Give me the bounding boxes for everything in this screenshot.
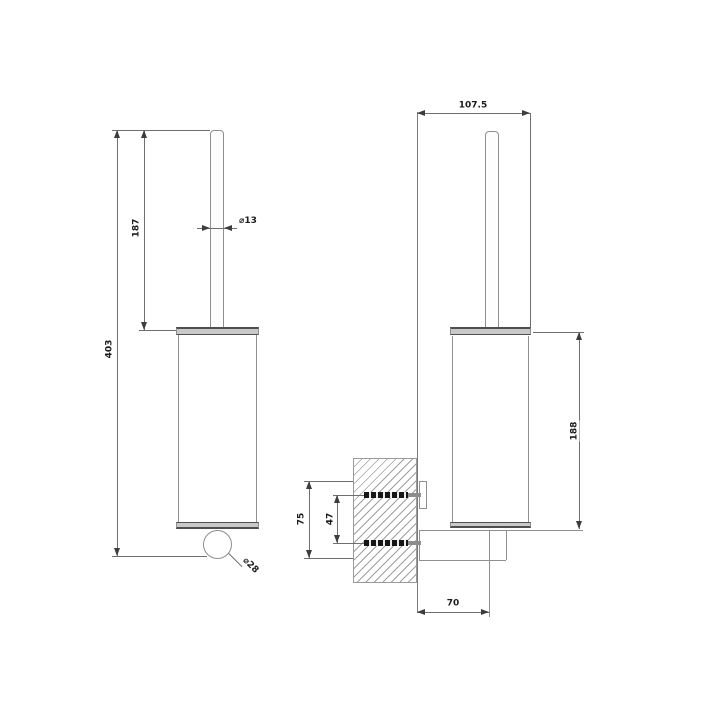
cup-top-rim (450, 327, 531, 335)
handle-rod (485, 131, 499, 332)
screw-tail (408, 541, 421, 545)
dim-label-wall-to-axis: 70 (446, 600, 461, 609)
dim-line-depth (417, 113, 530, 114)
arrowhead (202, 225, 210, 231)
dim-line-overall-height (117, 130, 118, 556)
arrowhead (417, 110, 425, 116)
dim-line-wall-to-axis (417, 612, 489, 613)
arrowhead (576, 521, 582, 529)
cup-body (178, 335, 257, 522)
arm-top-line (419, 530, 583, 531)
dim-label-screw-spacing: 47 (327, 512, 336, 527)
arm-right-line (506, 530, 507, 560)
arrowhead (306, 481, 312, 489)
dim-label-overall-height: 403 (106, 339, 115, 360)
cup-bottom-rim (176, 522, 259, 529)
dim-label-handle-diameter: ⌀13 (238, 217, 258, 226)
arrowhead (224, 225, 232, 231)
wall-surface-line (417, 112, 418, 613)
dim-line-handle-length (144, 130, 145, 330)
arrowhead (141, 322, 147, 330)
dim-line-fixture-height (309, 481, 310, 558)
extension-line (533, 332, 584, 333)
extension-line (112, 130, 210, 131)
arm-bottom-line (419, 560, 506, 561)
dim-label-body-height: 188 (571, 421, 580, 442)
extension-line (304, 558, 353, 559)
arrowhead (334, 535, 340, 543)
arrowhead (114, 130, 120, 138)
handle-rod (210, 130, 224, 331)
technical-drawing: 403 187 ⌀13 ⌀28 107.5 (0, 0, 720, 720)
arrowhead (576, 332, 582, 340)
arrowhead (114, 548, 120, 556)
dim-label-handle-length: 187 (133, 218, 142, 239)
arm-left-line (419, 530, 420, 560)
wall-anchor-screw (364, 540, 408, 546)
screw-tail (408, 493, 421, 497)
screw-centerline (333, 543, 364, 544)
dim-label-knob-diameter: ⌀28 (240, 556, 260, 576)
arrowhead (481, 609, 489, 615)
wall-anchor-screw (364, 492, 408, 498)
cup-top-rim (176, 327, 259, 335)
arrowhead (334, 495, 340, 503)
cup-body (452, 336, 529, 522)
extension-line (139, 330, 178, 331)
wall-section (353, 458, 417, 583)
extension-line (112, 556, 207, 557)
arrowhead (306, 550, 312, 558)
arrowhead (141, 130, 147, 138)
extension-line (304, 481, 353, 482)
arrowhead (522, 110, 530, 116)
arrowhead (417, 609, 425, 615)
axis-extension-line (489, 530, 490, 617)
bottom-knob (203, 530, 232, 559)
extension-line (530, 113, 531, 327)
dim-label-fixture-height: 75 (298, 512, 307, 527)
dim-label-depth: 107.5 (458, 102, 488, 111)
cup-bottom-rim (450, 522, 531, 528)
